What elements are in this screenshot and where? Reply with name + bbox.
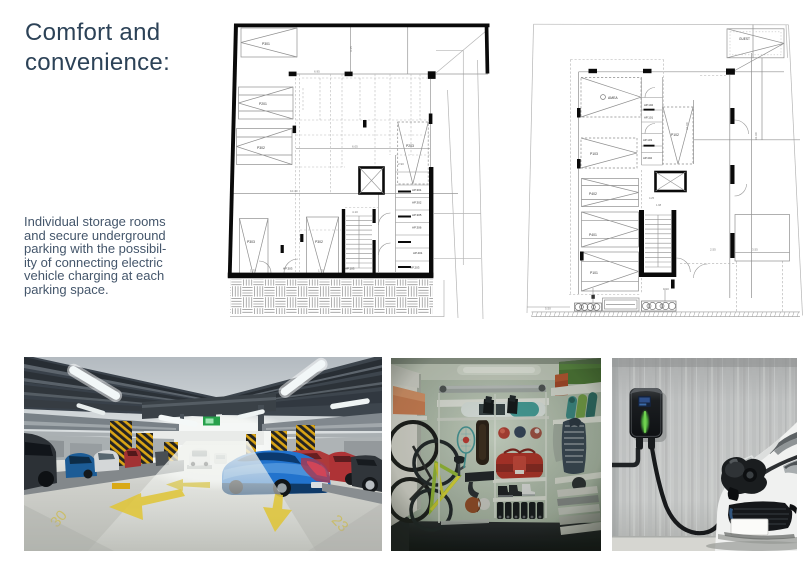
svg-text:3.55: 3.55 [752, 248, 758, 252]
svg-text:AP.103: AP.103 [643, 138, 653, 142]
svg-text:1.70: 1.70 [318, 269, 324, 273]
svg-text:P201: P201 [259, 102, 267, 106]
svg-text:31.90: 31.90 [754, 132, 758, 140]
svg-text:6.95: 6.95 [314, 70, 320, 74]
svg-text:6.05: 6.05 [352, 145, 358, 149]
svg-text:AP.302: AP.302 [412, 201, 422, 205]
svg-text:AP.305: AP.305 [412, 213, 422, 217]
svg-text:AP.203: AP.203 [410, 266, 420, 270]
svg-text:P401: P401 [589, 233, 597, 237]
svg-text:3.15: 3.15 [349, 46, 353, 52]
svg-text:AP.402: AP.402 [643, 156, 653, 160]
svg-text:P303: P303 [247, 240, 255, 244]
svg-text:10.40: 10.40 [290, 189, 298, 193]
svg-text:5.50: 5.50 [545, 307, 551, 311]
svg-text:GUEST: GUEST [739, 37, 750, 41]
svg-text:AP.101: AP.101 [644, 116, 654, 120]
svg-text:2.55: 2.55 [710, 248, 716, 252]
svg-text:P402: P402 [589, 192, 597, 196]
svg-text:AP.103: AP.103 [345, 267, 355, 271]
svg-text:1.70: 1.70 [250, 269, 256, 273]
svg-text:P102: P102 [671, 133, 679, 137]
svg-text:AP.301: AP.301 [412, 188, 422, 192]
svg-text:P301: P301 [262, 42, 270, 46]
svg-text:4.10: 4.10 [352, 210, 358, 214]
svg-text:P101: P101 [590, 271, 598, 275]
svg-text:AP.401: AP.401 [413, 251, 423, 255]
svg-text:P302: P302 [257, 146, 265, 150]
svg-text:1.10: 1.10 [663, 287, 669, 291]
svg-text:AMEA: AMEA [608, 96, 618, 100]
svg-text:AP.306: AP.306 [412, 226, 422, 230]
svg-text:1.98: 1.98 [656, 203, 662, 207]
svg-text:AP.102: AP.102 [644, 103, 654, 107]
svg-text:P103: P103 [590, 152, 598, 156]
svg-text:P302: P302 [315, 240, 323, 244]
svg-text:2.90: 2.90 [398, 162, 404, 166]
svg-text:P203: P203 [406, 144, 414, 148]
svg-text:31.90: 31.90 [685, 122, 689, 130]
svg-text:4.25: 4.25 [649, 196, 655, 200]
